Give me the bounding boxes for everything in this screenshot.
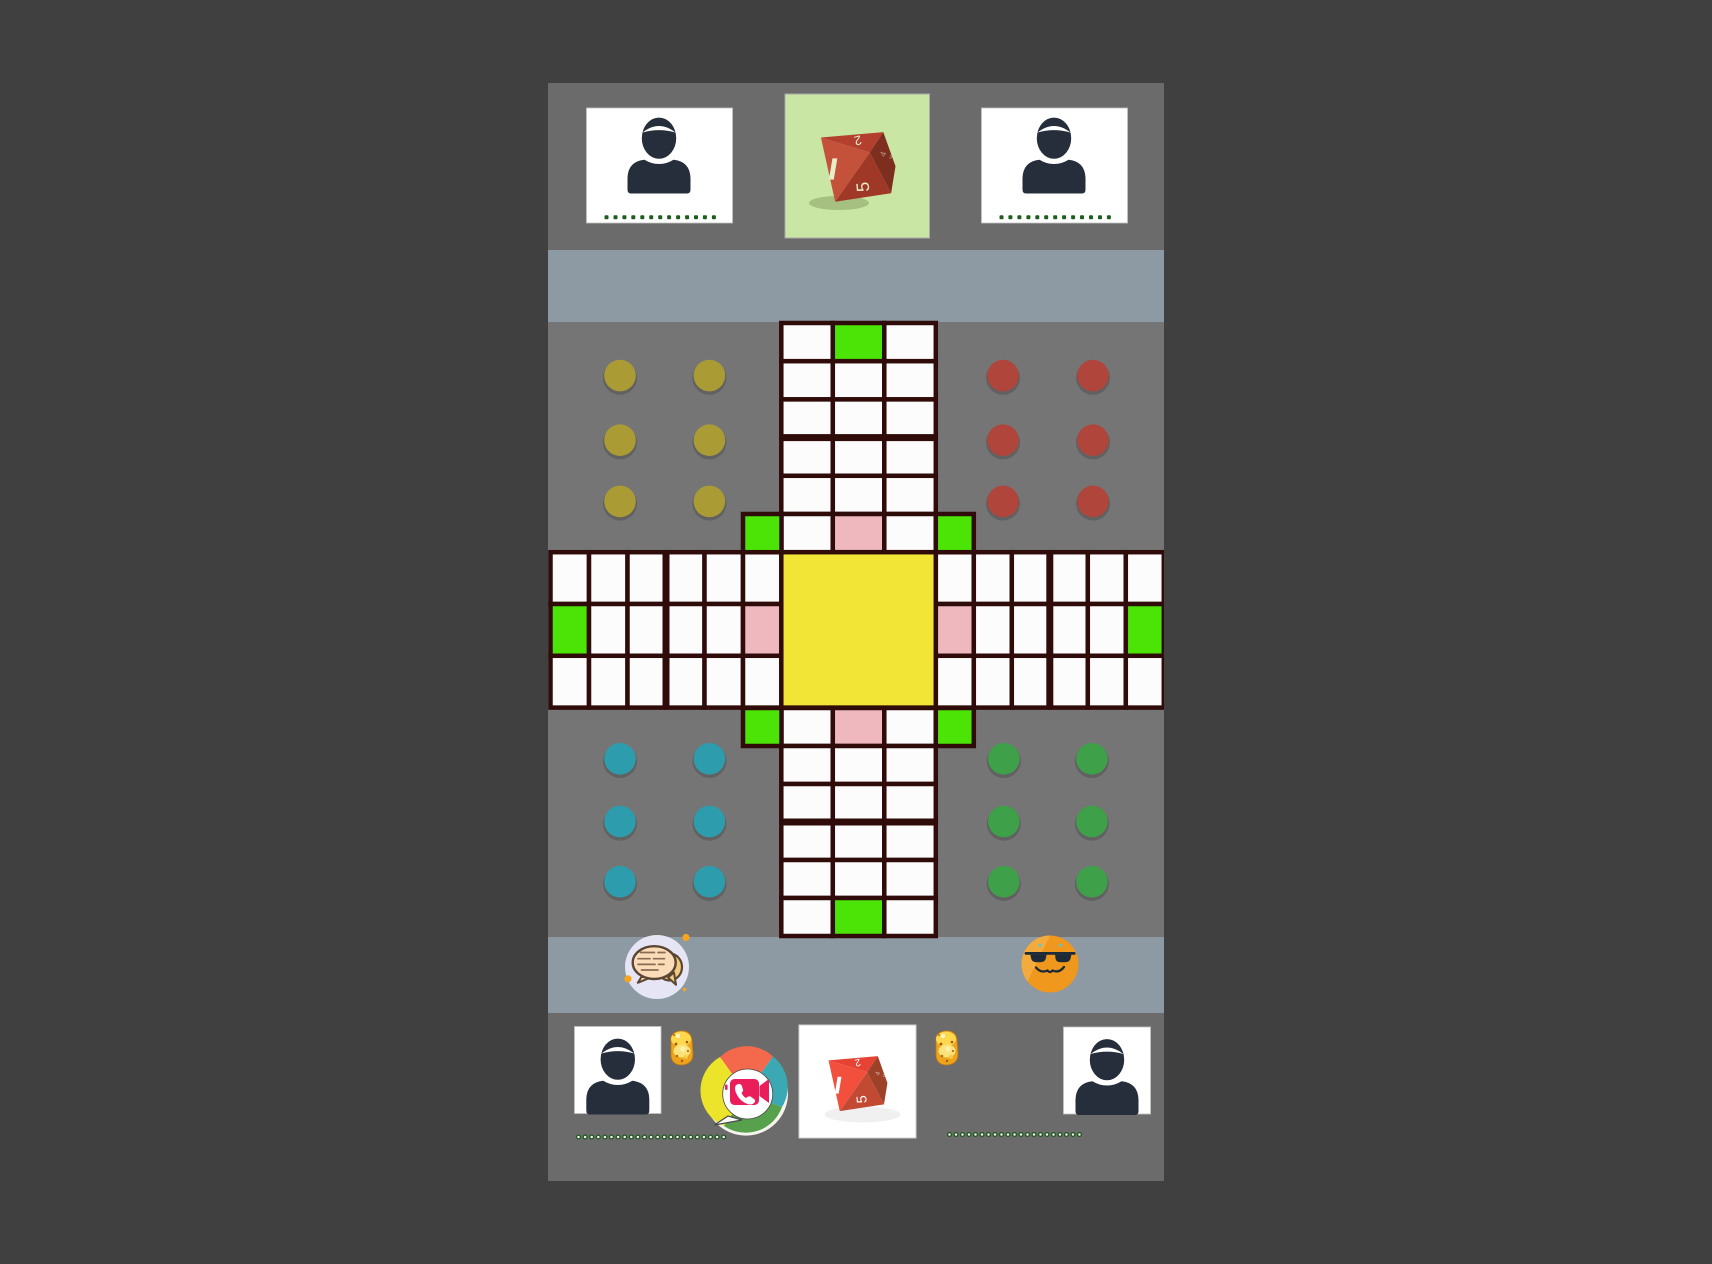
- svg-text:5: 5: [853, 181, 874, 193]
- svg-text:5: 5: [854, 1095, 871, 1104]
